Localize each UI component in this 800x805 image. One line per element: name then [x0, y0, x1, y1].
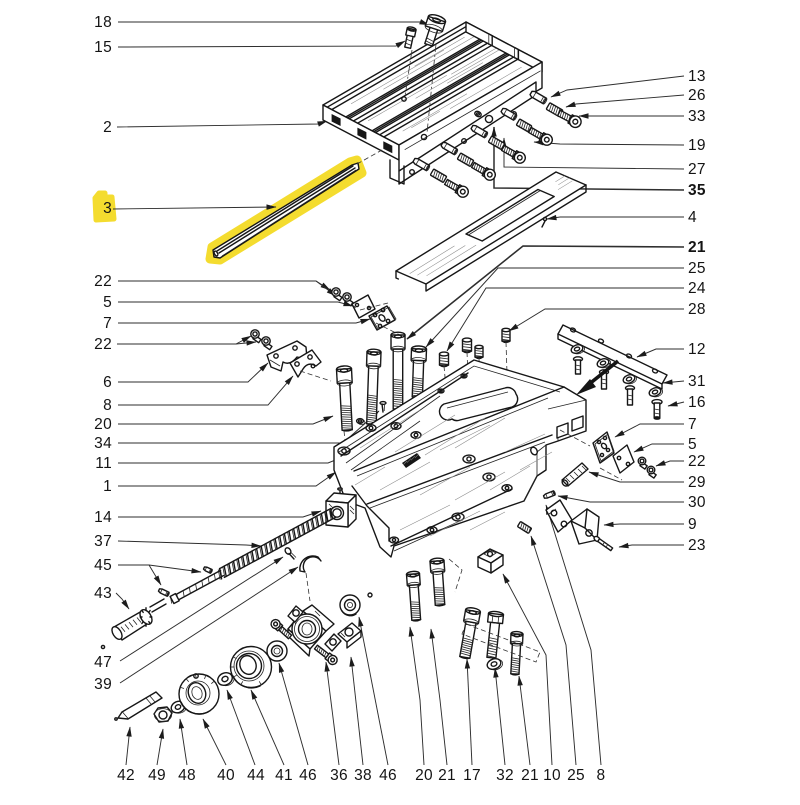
svg-text:27: 27 — [688, 161, 706, 178]
svg-text:22: 22 — [94, 273, 112, 290]
svg-text:15: 15 — [94, 39, 112, 56]
svg-text:24: 24 — [688, 280, 706, 297]
svg-text:7: 7 — [103, 315, 112, 332]
svg-text:43: 43 — [94, 585, 112, 602]
svg-text:38: 38 — [354, 767, 372, 784]
svg-text:29: 29 — [688, 474, 706, 491]
svg-text:22: 22 — [688, 453, 706, 470]
svg-text:6: 6 — [103, 374, 112, 391]
svg-text:20: 20 — [415, 767, 433, 784]
svg-text:9: 9 — [688, 516, 697, 533]
svg-text:47: 47 — [94, 654, 112, 671]
svg-text:23: 23 — [688, 537, 706, 554]
svg-text:35: 35 — [688, 182, 706, 199]
svg-text:1: 1 — [103, 478, 112, 495]
svg-text:21: 21 — [521, 767, 539, 784]
svg-text:8: 8 — [103, 397, 112, 414]
svg-text:3: 3 — [103, 200, 112, 217]
svg-text:14: 14 — [94, 509, 112, 526]
svg-text:32: 32 — [496, 767, 514, 784]
svg-text:21: 21 — [688, 239, 706, 256]
svg-text:48: 48 — [178, 767, 196, 784]
svg-text:36: 36 — [330, 767, 348, 784]
svg-text:49: 49 — [148, 767, 166, 784]
svg-text:31: 31 — [688, 373, 706, 390]
svg-text:45: 45 — [94, 557, 112, 574]
svg-text:39: 39 — [94, 676, 112, 693]
svg-text:33: 33 — [688, 108, 706, 125]
svg-text:21: 21 — [438, 767, 456, 784]
svg-text:5: 5 — [103, 294, 112, 311]
svg-text:28: 28 — [688, 301, 706, 318]
svg-text:8: 8 — [597, 767, 606, 784]
svg-text:26: 26 — [688, 87, 706, 104]
svg-text:12: 12 — [688, 341, 706, 358]
svg-text:13: 13 — [688, 68, 706, 85]
svg-text:4: 4 — [688, 209, 697, 226]
svg-text:34: 34 — [94, 435, 112, 452]
svg-text:2: 2 — [103, 119, 112, 136]
svg-text:46: 46 — [299, 767, 317, 784]
svg-text:18: 18 — [94, 14, 112, 31]
svg-text:10: 10 — [543, 767, 561, 784]
svg-text:37: 37 — [94, 533, 112, 550]
svg-text:5: 5 — [688, 436, 697, 453]
svg-text:46: 46 — [379, 767, 397, 784]
svg-text:42: 42 — [117, 767, 135, 784]
svg-text:25: 25 — [688, 260, 706, 277]
svg-text:20: 20 — [94, 416, 112, 433]
svg-text:44: 44 — [247, 767, 265, 784]
svg-text:41: 41 — [275, 767, 293, 784]
svg-text:17: 17 — [463, 767, 481, 784]
svg-text:19: 19 — [688, 137, 706, 154]
svg-text:22: 22 — [94, 336, 112, 353]
svg-text:40: 40 — [217, 767, 235, 784]
svg-text:11: 11 — [95, 455, 112, 472]
svg-text:7: 7 — [688, 416, 697, 433]
svg-text:16: 16 — [688, 394, 706, 411]
svg-text:25: 25 — [567, 767, 585, 784]
svg-text:30: 30 — [688, 494, 706, 511]
